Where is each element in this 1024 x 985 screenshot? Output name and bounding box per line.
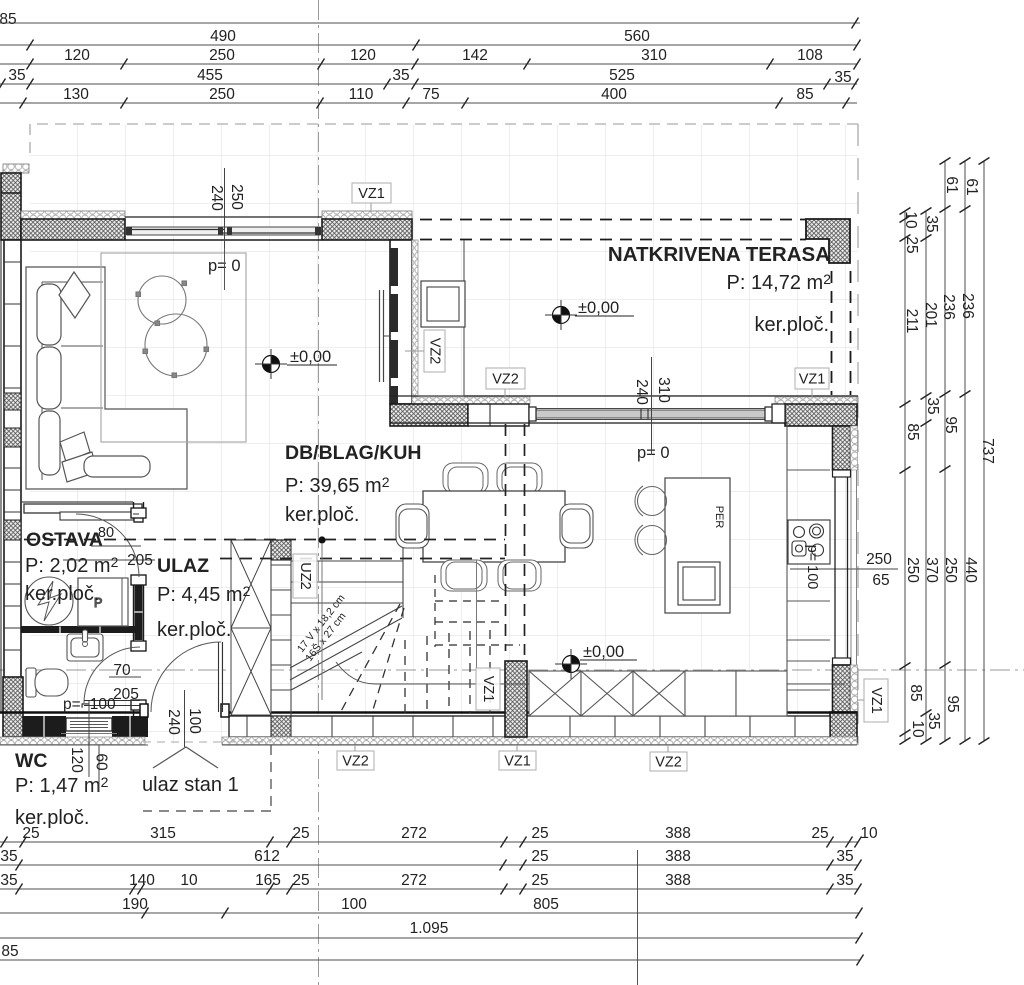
svg-text:35: 35 xyxy=(924,397,941,414)
svg-text:120: 120 xyxy=(350,47,376,64)
svg-text:ker.ploč.: ker.ploč. xyxy=(15,807,89,829)
svg-text:130: 130 xyxy=(63,86,89,103)
svg-text:61: 61 xyxy=(943,176,960,193)
svg-text:108: 108 xyxy=(797,47,823,64)
svg-text:10: 10 xyxy=(180,872,198,889)
svg-text:VZ1: VZ1 xyxy=(504,754,531,770)
svg-text:315: 315 xyxy=(150,825,176,842)
svg-text:P: 39,65 m2: P: 39,65 m2 xyxy=(285,474,390,497)
svg-text:455: 455 xyxy=(197,67,223,84)
svg-text:95: 95 xyxy=(942,416,959,433)
svg-text:490: 490 xyxy=(210,28,236,45)
svg-text:10: 10 xyxy=(860,825,878,842)
svg-text:737: 737 xyxy=(979,438,996,464)
svg-text:ker.ploč.: ker.ploč. xyxy=(755,314,829,336)
svg-text:VZ2: VZ2 xyxy=(342,754,369,770)
svg-text:25: 25 xyxy=(531,848,548,865)
svg-text:75: 75 xyxy=(422,86,439,103)
svg-text:±0,00: ±0,00 xyxy=(578,299,619,317)
svg-text:p= 0: p= 0 xyxy=(637,444,670,462)
svg-text:VZ1: VZ1 xyxy=(358,186,385,202)
svg-text:p= 100: p= 100 xyxy=(804,545,820,590)
svg-text:250: 250 xyxy=(228,184,245,210)
svg-text:240: 240 xyxy=(633,379,650,405)
svg-text:10: 10 xyxy=(909,720,926,738)
svg-text:250: 250 xyxy=(942,557,959,583)
svg-text:272: 272 xyxy=(401,872,427,889)
svg-text:25: 25 xyxy=(811,825,828,842)
svg-text:25: 25 xyxy=(531,872,548,889)
svg-text:805: 805 xyxy=(533,896,559,913)
svg-text:612: 612 xyxy=(254,848,280,865)
svg-text:250: 250 xyxy=(209,86,235,103)
svg-text:35: 35 xyxy=(834,69,851,86)
svg-text:VZ1: VZ1 xyxy=(480,676,496,703)
svg-text:201: 201 xyxy=(922,302,939,328)
svg-text:P: 14,72 m2: P: 14,72 m2 xyxy=(726,271,831,294)
svg-text:ker.ploč.: ker.ploč. xyxy=(25,583,99,605)
svg-text:35: 35 xyxy=(8,67,25,84)
svg-text:35: 35 xyxy=(0,872,17,889)
svg-text:ulaz stan 1: ulaz stan 1 xyxy=(142,774,239,796)
svg-text:388: 388 xyxy=(665,848,691,865)
svg-text:85: 85 xyxy=(796,86,813,103)
svg-text:P: 4,45 m2: P: 4,45 m2 xyxy=(157,583,251,606)
svg-text:VZ2: VZ2 xyxy=(655,755,682,771)
svg-text:65: 65 xyxy=(872,572,889,589)
svg-text:142: 142 xyxy=(462,47,488,64)
svg-text:250: 250 xyxy=(904,557,921,583)
svg-text:PER: PER xyxy=(713,506,725,529)
svg-text:ker.ploč.: ker.ploč. xyxy=(285,504,359,526)
svg-text:250: 250 xyxy=(209,47,235,64)
svg-text:35: 35 xyxy=(836,872,853,889)
svg-text:388: 388 xyxy=(665,825,691,842)
svg-text:80: 80 xyxy=(98,525,114,541)
svg-text:ULAZ: ULAZ xyxy=(157,555,209,577)
svg-text:85: 85 xyxy=(904,423,921,440)
svg-text:VZ1: VZ1 xyxy=(799,372,826,388)
svg-text:310: 310 xyxy=(641,47,667,64)
svg-text:35: 35 xyxy=(925,712,942,729)
svg-text:525: 525 xyxy=(609,67,635,84)
svg-text:236: 236 xyxy=(940,294,957,320)
svg-text:211: 211 xyxy=(903,309,920,334)
svg-text:35: 35 xyxy=(923,215,940,232)
svg-text:±0,00: ±0,00 xyxy=(583,643,624,661)
svg-text:205: 205 xyxy=(113,686,139,703)
svg-text:25: 25 xyxy=(292,872,309,889)
svg-text:240: 240 xyxy=(208,185,225,211)
svg-text:120: 120 xyxy=(68,747,85,773)
svg-text:240: 240 xyxy=(165,709,182,735)
svg-text:VZ2: VZ2 xyxy=(492,372,519,388)
svg-text:205: 205 xyxy=(127,552,153,569)
svg-text:25: 25 xyxy=(903,236,920,253)
svg-text:400: 400 xyxy=(601,86,627,103)
svg-text:OSTAVA: OSTAVA xyxy=(26,529,103,551)
svg-text:85: 85 xyxy=(0,11,17,28)
svg-text:35: 35 xyxy=(0,848,17,865)
svg-text:236: 236 xyxy=(959,293,976,319)
svg-text:VZ1: VZ1 xyxy=(868,687,884,714)
svg-text:250: 250 xyxy=(866,551,892,568)
svg-text:120: 120 xyxy=(64,47,90,64)
svg-text:560: 560 xyxy=(624,28,650,45)
svg-text:±0,00: ±0,00 xyxy=(290,348,331,366)
svg-text:UZ2: UZ2 xyxy=(297,562,313,589)
svg-text:388: 388 xyxy=(665,872,691,889)
svg-text:10: 10 xyxy=(902,211,919,229)
svg-text:100: 100 xyxy=(341,896,367,913)
svg-text:ker.ploč.: ker.ploč. xyxy=(157,619,231,641)
svg-text:NATKRIVENA TERASA: NATKRIVENA TERASA xyxy=(608,243,830,266)
svg-text:190: 190 xyxy=(122,896,148,913)
svg-text:DB/BLAG/KUH: DB/BLAG/KUH xyxy=(285,442,422,464)
svg-text:WC: WC xyxy=(15,750,48,772)
svg-text:61: 61 xyxy=(963,178,980,195)
svg-text:85: 85 xyxy=(1,943,18,960)
svg-text:1.095: 1.095 xyxy=(410,920,449,937)
svg-text:310: 310 xyxy=(655,377,672,403)
svg-text:370: 370 xyxy=(923,557,940,583)
svg-text:35: 35 xyxy=(392,67,409,84)
svg-text:110: 110 xyxy=(349,86,374,103)
svg-text:85: 85 xyxy=(907,684,924,701)
svg-text:165: 165 xyxy=(255,872,281,889)
svg-text:25: 25 xyxy=(292,825,309,842)
svg-text:440: 440 xyxy=(962,557,979,583)
svg-text:100: 100 xyxy=(186,708,203,734)
svg-text:70: 70 xyxy=(113,662,131,679)
svg-text:60: 60 xyxy=(92,753,109,771)
svg-text:25: 25 xyxy=(531,825,548,842)
svg-text:P: 2,02 m2: P: 2,02 m2 xyxy=(25,554,119,577)
svg-text:VZ2: VZ2 xyxy=(427,338,443,365)
svg-text:P: 1,47 m2: P: 1,47 m2 xyxy=(15,774,109,797)
svg-text:140: 140 xyxy=(129,872,155,889)
svg-text:35: 35 xyxy=(836,848,853,865)
svg-text:272: 272 xyxy=(401,825,427,842)
svg-text:95: 95 xyxy=(944,695,961,712)
